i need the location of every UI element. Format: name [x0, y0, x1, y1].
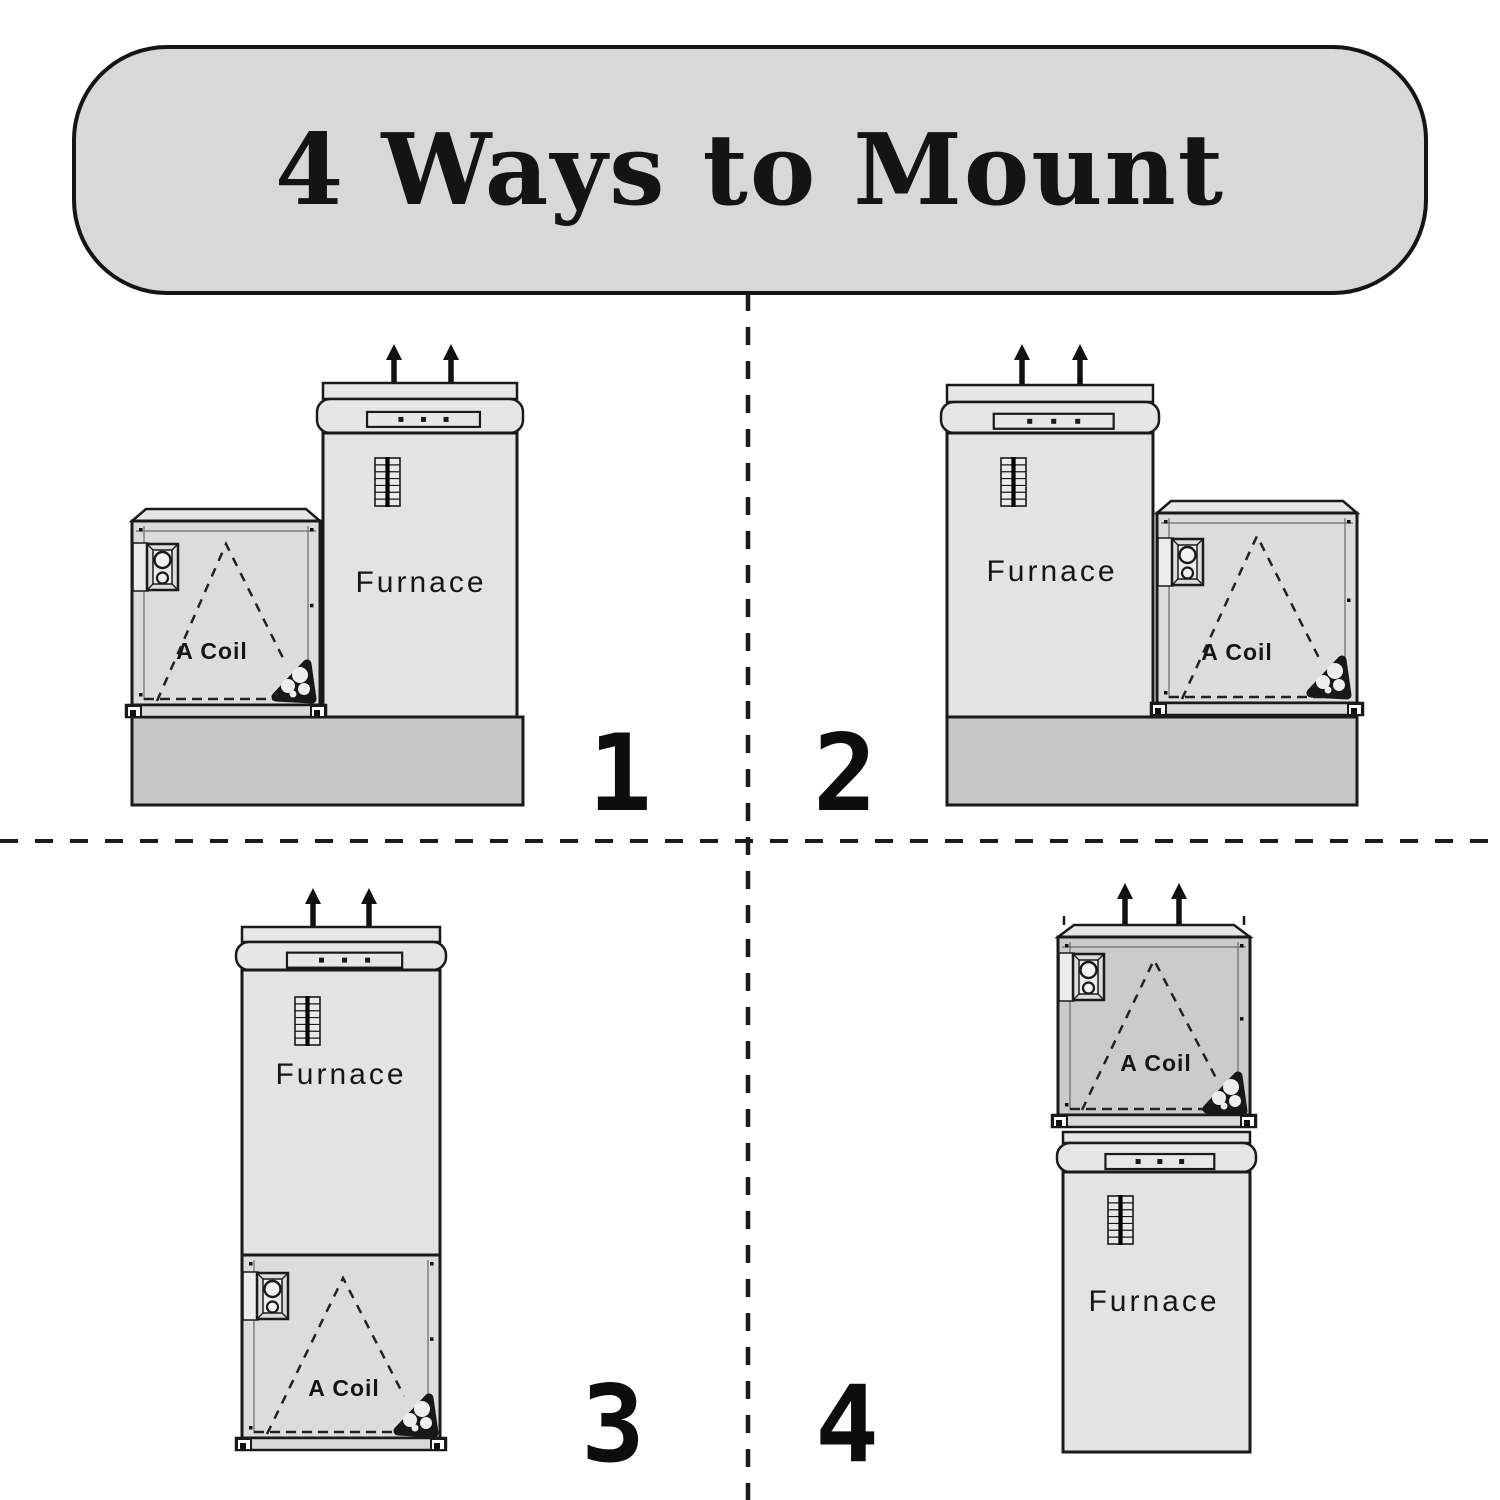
screw-dot-icon: [310, 604, 314, 608]
airflow-arrow-icon: [1171, 883, 1187, 927]
louver-dot-icon: [398, 417, 403, 422]
louver-dot-icon: [1179, 1159, 1184, 1164]
louver-dot-icon: [1051, 419, 1056, 424]
screw-dot-icon: [1065, 1103, 1069, 1107]
screw-dot-icon: [139, 693, 143, 697]
line-connection-flange-icon: [243, 1272, 288, 1320]
furnace-unit: Furnace: [236, 888, 446, 1255]
screw-dot-icon: [1065, 944, 1069, 948]
acoil-label: A Coil: [1120, 1050, 1192, 1076]
acoil-lid: [1058, 925, 1250, 937]
furnace-top-plate: [1063, 1132, 1250, 1143]
furnace-unit: Furnace: [317, 344, 523, 717]
acoil-lid: [1157, 501, 1357, 513]
furnace-label: Furnace: [275, 1058, 406, 1091]
quadrant-2-number: 2: [813, 721, 877, 827]
screw-dot-icon: [1164, 691, 1168, 695]
louver-dot-icon: [319, 958, 324, 963]
quadrant-4-number: 4: [815, 1372, 879, 1478]
page: FurnaceA CoilFurnaceA CoilFurnaceA CoilF…: [0, 0, 1500, 1500]
screw-dot-icon: [430, 1262, 434, 1266]
quadrant-2-diagram: FurnaceA Coil: [941, 344, 1363, 805]
airflow-arrow-icon: [1014, 344, 1030, 388]
louver-dot-icon: [1136, 1159, 1141, 1164]
airflow-arrow-icon: [1117, 883, 1133, 927]
louver-dot-icon: [342, 958, 347, 963]
acoil-unit: A Coil: [236, 1255, 446, 1450]
banner-title: 4 Ways to Mount: [275, 113, 1225, 228]
quadrant-3-number: 3: [581, 1372, 645, 1478]
screw-dot-icon: [249, 1426, 253, 1430]
vent-grid-icon: [1001, 457, 1026, 507]
screw-dot-icon: [139, 528, 143, 532]
louver-dot-icon: [421, 417, 426, 422]
vent-grid-icon: [1108, 1195, 1133, 1245]
louver-dot-icon: [1075, 419, 1080, 424]
acoil-bottom-rail: [236, 1438, 446, 1450]
acoil-bottom-rail: [1052, 1115, 1256, 1127]
screw-dot-icon: [1347, 599, 1351, 603]
quadrant-4-diagram: FurnaceA Coil: [1052, 883, 1256, 1452]
furnace-cap-band: [236, 942, 446, 970]
screw-dot-icon: [1164, 520, 1168, 524]
furnace-unit: Furnace: [1057, 1132, 1256, 1452]
acoil-bottom-rail: [126, 705, 326, 717]
airflow-arrow-icon: [386, 344, 402, 388]
louver-dot-icon: [1157, 1159, 1162, 1164]
vent-grid-icon: [375, 457, 400, 507]
furnace-top-plate: [947, 385, 1153, 402]
acoil-bottom-rail: [1151, 703, 1363, 715]
acoil-unit: A Coil: [1151, 501, 1363, 715]
screw-dot-icon: [1347, 520, 1351, 524]
furnace-label: Furnace: [986, 555, 1117, 588]
screw-dot-icon: [310, 528, 314, 532]
furnace-label: Furnace: [1088, 1285, 1219, 1318]
acoil-unit: A Coil: [126, 509, 326, 717]
line-connection-flange-icon: [1158, 538, 1203, 586]
furnace-unit: Furnace: [941, 344, 1159, 717]
furnace-cap-band: [1057, 1143, 1256, 1172]
acoil-label: A Coil: [308, 1375, 380, 1401]
screw-dot-icon: [249, 1262, 253, 1266]
airflow-arrow-icon: [1072, 344, 1088, 388]
furnace-top-plate: [323, 383, 517, 399]
louver-dot-icon: [444, 417, 449, 422]
line-connection-flange-icon: [1059, 953, 1104, 1001]
base-plinth: [132, 717, 523, 805]
quadrant-1-number: 1: [588, 721, 652, 827]
acoil-unit: A Coil: [1052, 883, 1256, 1127]
furnace-body: [242, 970, 440, 1255]
title-banner: 4 Ways to Mount: [72, 45, 1428, 295]
acoil-label: A Coil: [1201, 639, 1273, 665]
line-connection-flange-icon: [133, 543, 178, 591]
acoil-lid: [132, 509, 320, 521]
airflow-arrow-icon: [361, 888, 377, 932]
screw-dot-icon: [430, 1337, 434, 1341]
quadrant-3-diagram: FurnaceA Coil: [236, 888, 446, 1450]
screw-dot-icon: [1240, 944, 1244, 948]
louver-dot-icon: [1027, 419, 1032, 424]
vent-grid-icon: [295, 996, 320, 1046]
quadrant-1-diagram: FurnaceA Coil: [126, 344, 523, 805]
base-plinth: [947, 717, 1357, 805]
furnace-label: Furnace: [355, 566, 486, 599]
furnace-top-plate: [242, 927, 440, 942]
acoil-label: A Coil: [176, 638, 248, 664]
screw-dot-icon: [1240, 1017, 1244, 1021]
louver-dot-icon: [365, 958, 370, 963]
airflow-arrow-icon: [443, 344, 459, 388]
airflow-arrow-icon: [305, 888, 321, 932]
